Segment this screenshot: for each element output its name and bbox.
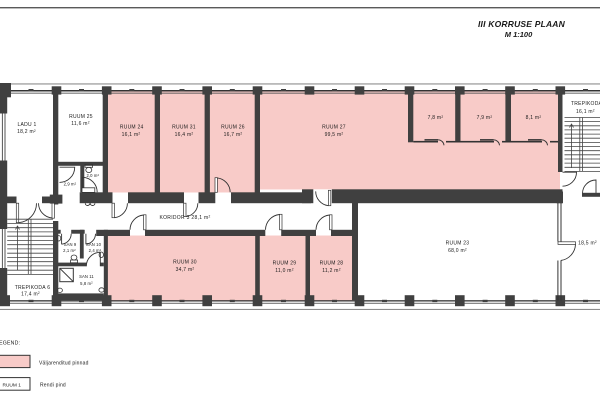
svg-text:RUUM 29: RUUM 29 [273,261,297,267]
svg-text:16,4 m2: 16,4 m2 [175,131,194,137]
svg-text:17,4 m2: 17,4 m2 [21,291,40,297]
svg-text:KORIDOR 3 28,1 m2: KORIDOR 3 28,1 m2 [159,215,210,221]
svg-text:TREPIKODA: TREPIKODA [571,101,600,107]
svg-text:18,5 m2: 18,5 m2 [578,240,597,246]
svg-text:LEGEND:: LEGEND: [0,341,20,347]
svg-text:RUUM 1: RUUM 1 [3,382,22,388]
svg-text:11,6 m2: 11,6 m2 [71,121,89,127]
svg-text:RUUM 30: RUUM 30 [173,260,197,266]
svg-text:16,1 m2: 16,1 m2 [122,131,141,137]
svg-text:11,2 m2: 11,2 m2 [322,267,340,273]
svg-text:LADU 1: LADU 1 [17,122,36,128]
svg-text:SAN 10: SAN 10 [86,242,102,247]
svg-text:RUUM 31: RUUM 31 [172,125,196,131]
svg-text:7,8 m2: 7,8 m2 [428,115,444,121]
svg-text:III KORRUSE PLAAN: III KORRUSE PLAAN [478,19,566,29]
svg-text:RUUM 26: RUUM 26 [221,125,245,131]
svg-text:16,1 m2: 16,1 m2 [576,109,595,115]
svg-text:RUUM 25: RUUM 25 [69,114,93,120]
svg-text:SAN 11: SAN 11 [79,274,94,279]
svg-text:18,2 m2: 18,2 m2 [17,129,36,135]
svg-text:34,7 m2: 34,7 m2 [176,266,195,272]
svg-text:8,1 m2: 8,1 m2 [526,115,542,121]
svg-text:RUUM 28: RUUM 28 [320,261,344,267]
svg-text:M 1:100: M 1:100 [505,30,533,39]
svg-text:7,9 m2: 7,9 m2 [477,115,493,121]
svg-text:Väljarenditud pinnad: Väljarenditud pinnad [39,361,89,367]
svg-text:SAN 9: SAN 9 [64,242,77,247]
svg-text:RUUM 24: RUUM 24 [120,125,144,131]
svg-text:RUUM 27: RUUM 27 [322,125,346,131]
svg-text:99,5 m2: 99,5 m2 [325,131,344,137]
svg-text:11,0 m2: 11,0 m2 [275,267,293,273]
svg-text:RUUM 23: RUUM 23 [446,241,470,247]
svg-text:16,7 m2: 16,7 m2 [224,131,243,137]
svg-text:TREPIKODA 6: TREPIKODA 6 [15,285,51,291]
svg-text:Rendi pind: Rendi pind [40,383,66,389]
svg-text:68,0 m2: 68,0 m2 [448,247,467,253]
